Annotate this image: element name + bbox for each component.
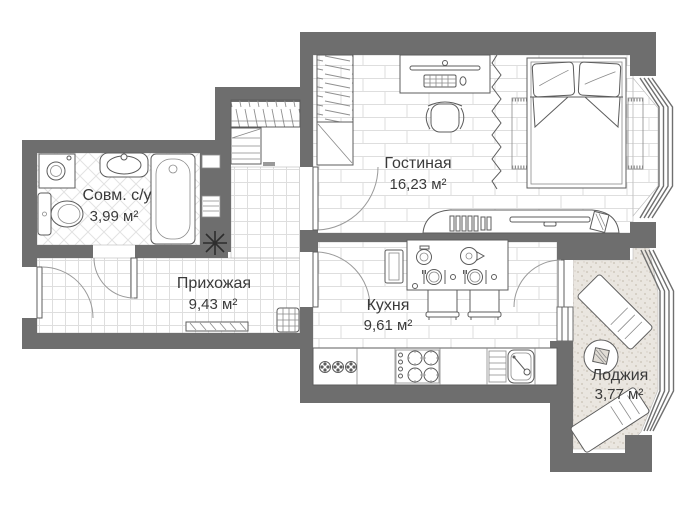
closet-edge [263,162,275,166]
wall-bathroom-bottom-right [135,245,228,258]
plant-icon [203,231,227,255]
tv-stand-icon [423,210,619,233]
chair-side-icon [385,250,403,283]
wall-bathroom-top [22,140,228,153]
table-item [413,284,418,289]
chair-2-icon [468,290,501,320]
hallway-name: Прихожая [177,275,251,292]
hallway-upper-floor [231,167,300,258]
wall-kitchen-bottom [300,385,558,403]
hallway-area: 9,43 м² [189,296,238,313]
kitchen-counter [313,348,557,385]
bathroom-door-leaf [131,258,137,298]
entrance-opening [22,267,37,318]
kitchen-door-leaf [313,252,318,307]
hallway-floor [37,258,300,333]
desk-icon [400,55,490,93]
wardrobe-icon [317,55,353,165]
loggia-area: 3,77 м² [595,386,644,403]
wall-living-top [300,32,633,55]
living-door-leaf [313,167,318,230]
kitchen-opening [300,252,313,307]
dining-table-icon [407,240,508,290]
kitchen-name: Кухня [367,297,410,314]
loggia-door-leaf [558,260,564,307]
wall-mid-bay-block [630,222,656,248]
wall-connector-left [215,87,231,153]
loggia-window [557,307,573,341]
wall-bathroom-bottom-left [22,245,93,258]
living-name: Гостиная [384,155,451,172]
sink-icon [100,153,148,177]
wall-corner-top-right [630,32,656,76]
chair-1-icon [426,290,459,320]
closet-hangers [231,100,300,127]
double-bed-icon [527,58,626,188]
entrance-door-leaf [37,267,42,318]
living-area: 16,23 м² [389,176,446,193]
floor-plan-canvas: Совм. с/у 3,99 м² Прихожая 9,43 м² Гости… [0,0,694,507]
kitchen-area: 9,61 м² [364,317,413,334]
wall-niche-1 [202,155,220,168]
bathroom-area: 3,99 м² [90,208,139,225]
wall-loggia-top-block [557,233,630,260]
floor-plan: Совм. с/у 3,99 м² Прихожая 9,43 м² Гости… [0,0,694,507]
living-opening [300,167,313,230]
doormat-icon [277,308,299,332]
bathroom-name: Совм. с/у [82,187,151,204]
wall-living-left [300,102,313,167]
closet-shelves [231,128,261,164]
shoe-shelf-icon [186,322,248,331]
mouse-icon [460,77,466,85]
towel-ladder-icon [202,196,220,217]
books-icon [450,216,491,231]
bathtub-icon [151,154,195,244]
wall-loggia-corner-block [625,435,652,472]
wall-hall-kitchen [300,307,313,333]
loggia-name: Лоджия [592,367,649,384]
wall-hallway-bottom [22,333,313,349]
washing-machine-icon [39,154,75,188]
